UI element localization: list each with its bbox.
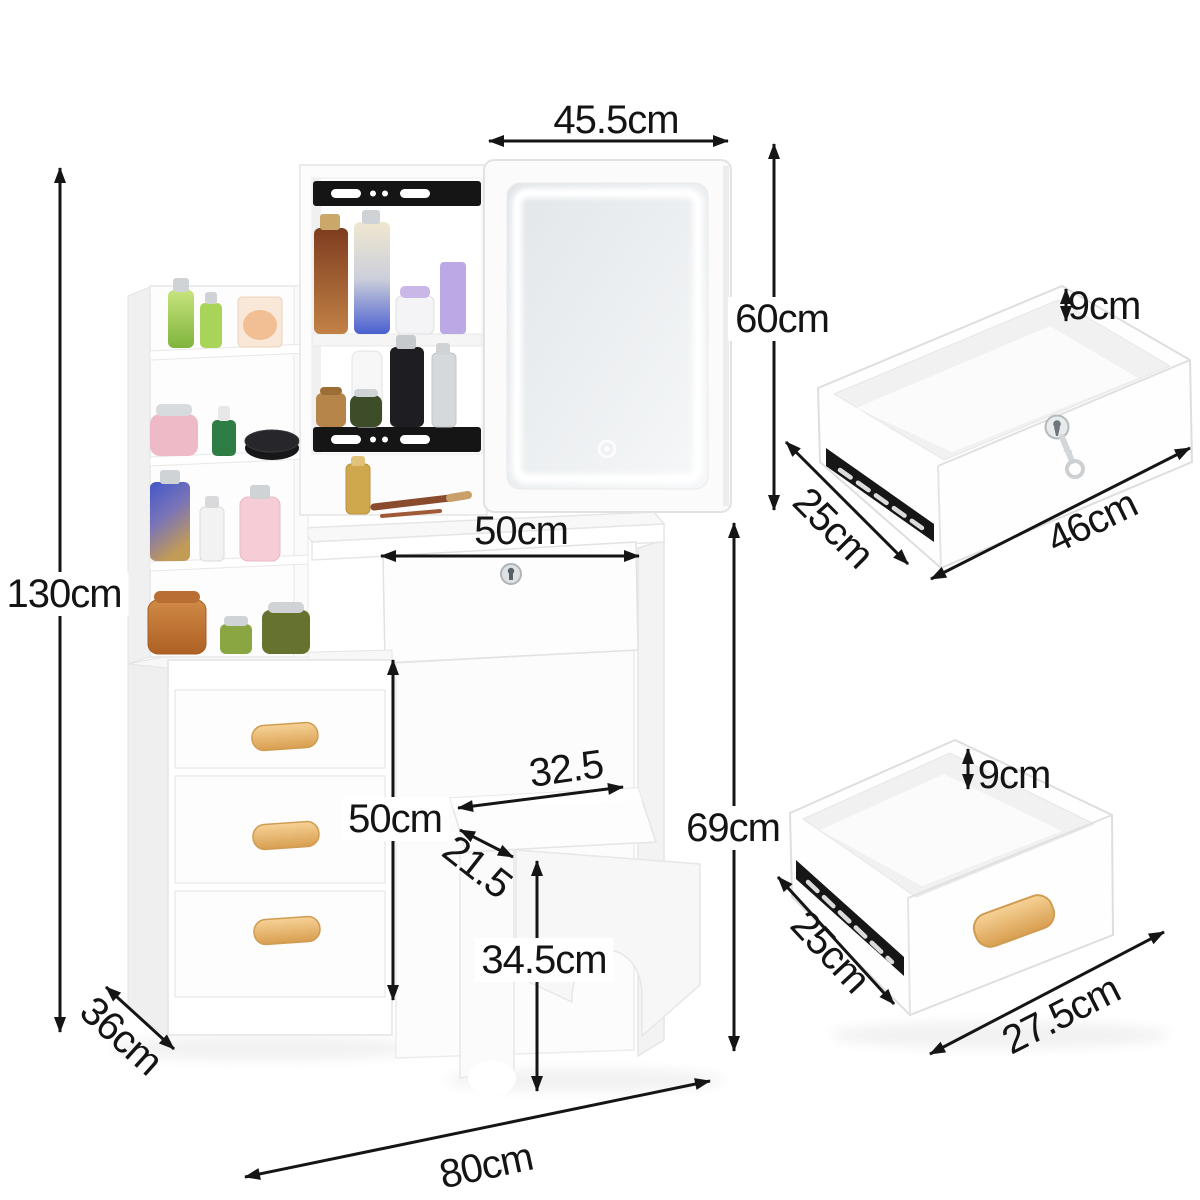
dim-table-height: 69cm bbox=[679, 806, 787, 850]
led-mirror bbox=[484, 160, 731, 512]
top-detail-drawer bbox=[818, 286, 1192, 568]
product-dimension-diagram: 45.5cm 60cm 130cm 50cm 50cm 32.5 21.5 69… bbox=[0, 0, 1200, 1200]
wood-handle bbox=[251, 722, 319, 752]
drawer-slide-rail-icon bbox=[313, 181, 481, 206]
dim-mirror-width: 45.5cm bbox=[553, 100, 678, 140]
dim-top-drawer-height: 9cm bbox=[1068, 286, 1141, 326]
dim-mirror-height: 60cm bbox=[728, 297, 836, 341]
drawer-slide-rail-icon bbox=[313, 427, 481, 452]
mirror-storage-cabinet bbox=[300, 165, 487, 516]
dim-knee-height: 50cm bbox=[341, 797, 449, 841]
dim-stool-seat-width: 32.5 bbox=[527, 744, 606, 794]
cabinet-side-panel bbox=[128, 656, 168, 1038]
dim-bottom-drawer-height: 9cm bbox=[978, 755, 1051, 795]
wood-handle bbox=[253, 916, 321, 946]
desk-drawer bbox=[383, 542, 638, 663]
dim-stool-height: 34.5cm bbox=[474, 938, 613, 982]
keyhole-icon bbox=[501, 564, 521, 584]
wood-handle bbox=[252, 821, 320, 851]
drawer-cabinet bbox=[128, 650, 392, 1038]
dim-total-height: 130cm bbox=[0, 572, 129, 616]
desk-back-panel bbox=[396, 650, 634, 1058]
dim-desktop-drawer-width: 50cm bbox=[474, 511, 568, 551]
keyhole-icon bbox=[1046, 416, 1069, 439]
